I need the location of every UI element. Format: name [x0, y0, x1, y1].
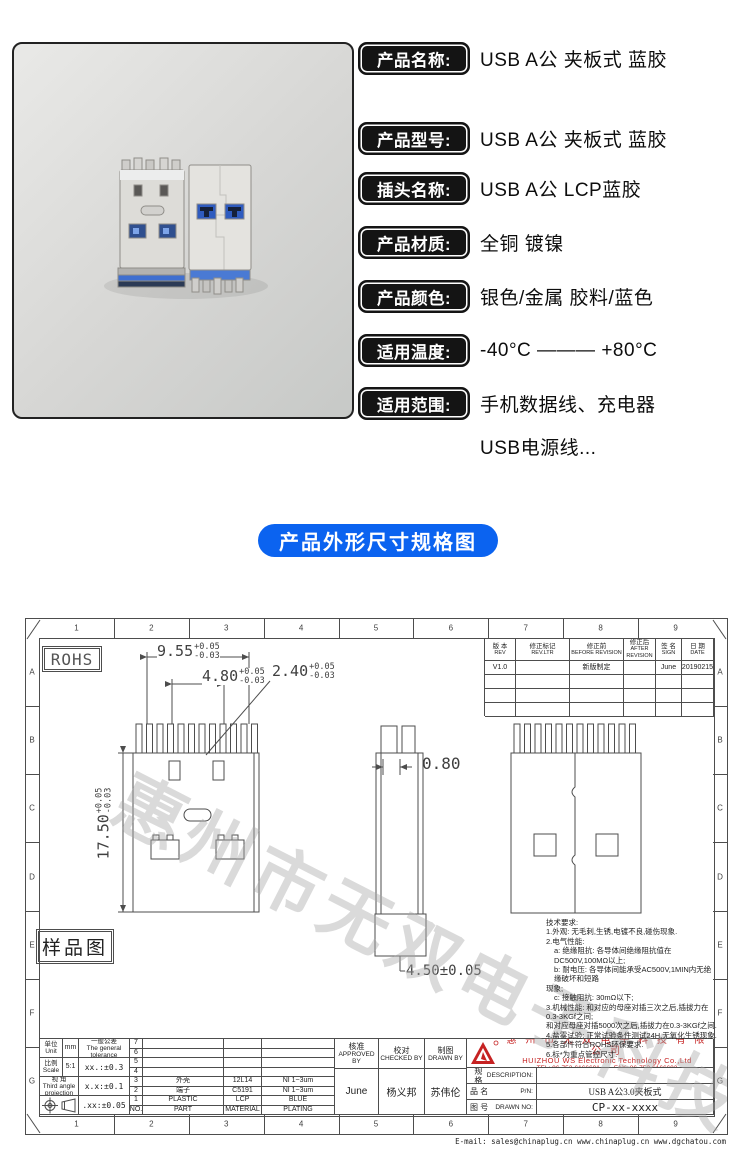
- revision-header-cn: 签 名: [661, 643, 676, 650]
- revision-header-cell: 签 名SIGN: [656, 639, 682, 661]
- dim-0-80: 0.80: [422, 756, 461, 771]
- revision-cell: [656, 675, 682, 689]
- parts-cell: MATERIAL: [224, 1106, 262, 1116]
- revision-header-en: BEFORE REVISION: [571, 650, 621, 657]
- dim-tol-minus: -0.03: [309, 672, 335, 681]
- dim-17-50: 17.50 +0.05-0.03: [96, 778, 113, 870]
- revision-cell: [624, 689, 656, 703]
- note-line: 5.各部件符合ROHS环保要求.: [546, 1040, 718, 1049]
- note-line: 现象;: [546, 984, 718, 993]
- parts-cell: [262, 1068, 335, 1078]
- approved-by-value: June: [335, 1069, 379, 1115]
- product-photo-illustration: [14, 44, 352, 417]
- revision-header-cn: 日 期: [690, 643, 705, 650]
- drawn-by-value: 苏伟伦: [425, 1069, 467, 1115]
- spec-label-product-name: 产品名称:: [358, 42, 470, 75]
- part-number-value-cell: USB A公3.0夹板式: [537, 1084, 714, 1100]
- note-line: b: 耐电压: 各导体间能承受AC500V,1MIN内无绝缘破坏和短路: [546, 965, 718, 984]
- revision-cell: June: [656, 661, 682, 675]
- projection-symbol-cell: [40, 1096, 79, 1115]
- parts-cell: 6: [130, 1049, 143, 1059]
- general-tolerance-cell: 一般公差 The general tolerance: [79, 1039, 130, 1058]
- checked-by-header: 校对 CHECKED BY: [379, 1039, 425, 1069]
- dim-9-55-value: 9.55: [157, 644, 193, 659]
- sample-figure-box: 样品图: [36, 929, 114, 964]
- sample-figure-label: 样品图: [38, 931, 112, 962]
- note-line: 2.电气性能:: [546, 937, 718, 946]
- revision-cell: [516, 689, 570, 703]
- dim-4-50: 4.50±0.05: [406, 964, 482, 979]
- parts-cell: 外壳: [143, 1077, 224, 1087]
- dim-2-40: 2.40 +0.05-0.03: [272, 663, 335, 680]
- spec-value-application: 手机数据线、充电器: [480, 387, 656, 420]
- parts-cell: PLATING: [262, 1106, 335, 1116]
- parts-cell: 端子: [143, 1087, 224, 1097]
- note-line: 3.机械性能: 和对应的母座对插三次之后,插拔力在0.3-3KGf之间;: [546, 1003, 718, 1022]
- view-angle-cell: 视 角 Third angle projection: [40, 1077, 79, 1096]
- spec-value-product-name: USB A公 夹板式 蓝胶: [480, 42, 667, 75]
- company-logo-icon: [469, 1040, 501, 1067]
- revision-header-cn: 修正前: [587, 643, 607, 650]
- revision-cell: [682, 689, 714, 703]
- revision-cell: [624, 661, 656, 675]
- approved-by-en: APPROVED BY: [335, 1051, 378, 1065]
- revision-header-en: SIGN: [662, 650, 675, 657]
- tolerance-0-1-cell: x.x:±0.1: [79, 1077, 130, 1096]
- revision-cell: V1.0: [485, 661, 516, 675]
- parts-cell: [224, 1049, 262, 1059]
- revision-header-cell: 版 本REV: [485, 639, 516, 661]
- drawn-by-header: 制图 DRAWN BY: [425, 1039, 467, 1069]
- parts-cell: [262, 1039, 335, 1049]
- dim-tol-minus: -0.03: [104, 788, 113, 814]
- description-label-cell: 规 格 DESCRIPTION:: [467, 1068, 537, 1084]
- dim-4-80-value: 4.80: [202, 669, 238, 684]
- parts-cell: 4: [130, 1068, 143, 1078]
- revision-header-en: REV: [494, 650, 505, 657]
- revision-cell: [682, 675, 714, 689]
- parts-cell: BLUE: [262, 1096, 335, 1106]
- revision-header-cn: 修正标记: [530, 643, 556, 650]
- spec-value-color: 银色/金属 胶料/蓝色: [480, 280, 653, 313]
- tolerance-0-3-cell: xx.:±0.3: [79, 1058, 130, 1077]
- description-en: DESCRIPTION:: [487, 1072, 533, 1079]
- dwg-en: DRAWN NO:: [495, 1104, 533, 1111]
- spec-value-application-line2: USB电源线...: [480, 430, 596, 463]
- note-line: 1.外观: 无毛刺,生锈,电镀不良,碰伤现象.: [546, 927, 718, 936]
- spec-label-plug-name: 插头名称:: [358, 172, 470, 205]
- parts-cell: [224, 1039, 262, 1049]
- pn-en: P/N:: [520, 1088, 533, 1095]
- parts-cell: PART: [143, 1106, 224, 1116]
- checked-by-en: CHECKED BY: [380, 1055, 422, 1062]
- note-line: 技术要求:: [546, 918, 718, 927]
- drawing-number-label-cell: 图 号 DRAWN NO:: [467, 1100, 537, 1115]
- revision-cell: [624, 703, 656, 717]
- drawn-by-en: DRAWN BY: [428, 1055, 463, 1062]
- revision-table: 版 本REV修正标记REV.LTR修正前BEFORE REVISION修正后AF…: [484, 638, 713, 716]
- parts-cell: [143, 1068, 224, 1078]
- revision-cell: [485, 703, 516, 717]
- spec-label-model: 产品型号:: [358, 122, 470, 155]
- note-line: c: 接触阻抗: 30mΩ以下;: [546, 993, 718, 1002]
- revision-cell: [570, 675, 624, 689]
- revision-header-cell: 修正后AFTER REVISION: [624, 639, 656, 661]
- drawing-number-value-cell: CP-xx-xxxx: [537, 1100, 714, 1115]
- scale-en: Scale: [43, 1067, 59, 1074]
- parts-cell: NI 1~3um: [262, 1087, 335, 1097]
- parts-cell: LCP: [224, 1096, 262, 1106]
- revision-cell: [656, 689, 682, 703]
- revision-header-cn: 版 本: [493, 643, 508, 650]
- spec-value-plug-name: USB A公 LCP蓝胶: [480, 172, 641, 205]
- parts-cell: [143, 1039, 224, 1049]
- checked-by-value: 杨义邦: [379, 1069, 425, 1115]
- unit-cn: 单位: [45, 1041, 58, 1048]
- view-en1: Third angle: [43, 1083, 76, 1090]
- revision-header-en: DATE: [690, 650, 704, 657]
- unit-en: Unit: [45, 1048, 57, 1055]
- drawn-by-cn: 制图: [438, 1046, 454, 1055]
- revision-cell: [516, 675, 570, 689]
- spec-label-color: 产品颜色:: [358, 280, 470, 313]
- revision-cell: [682, 703, 714, 717]
- unit-label-cell: 单位 Unit: [40, 1039, 63, 1058]
- parts-cell: [262, 1049, 335, 1059]
- note-line: 4.盐雾试验: 正常试验条件测试24H,无氧化生锈现象.: [546, 1031, 718, 1040]
- dim-9-55: 9.55 +0.05-0.03: [157, 643, 220, 660]
- spec-label-material: 产品材质:: [358, 226, 470, 259]
- revision-cell: 20190215: [682, 661, 714, 675]
- parts-cell: 5: [130, 1058, 143, 1068]
- parts-cell: 3: [130, 1077, 143, 1087]
- product-photo: [12, 42, 354, 419]
- unit-value-cell: mm: [63, 1039, 79, 1058]
- dim-2-40-value: 2.40: [272, 664, 308, 679]
- revision-cell: [624, 675, 656, 689]
- technical-notes: 技术要求:1.外观: 无毛刺,生锈,电镀不良,碰伤现象.2.电气性能:a: 绝缘…: [546, 918, 718, 1059]
- approval-block: 核准 APPROVED BY 校对 CHECKED BY 制图 DRAWN BY…: [334, 1038, 466, 1114]
- note-line: 6.标*为重点管控尺寸.: [546, 1050, 718, 1059]
- parts-cell: NI 1~3um: [262, 1077, 335, 1087]
- rohs-box: ROHS: [42, 646, 102, 672]
- description-cn: 规 格: [470, 1068, 487, 1084]
- dim-tol-minus: -0.03: [239, 677, 265, 686]
- dim-tol-minus: -0.03: [194, 652, 220, 661]
- parts-cell: 7: [130, 1039, 143, 1049]
- revision-cell: [485, 675, 516, 689]
- approved-by-cn: 核准: [349, 1042, 365, 1051]
- revision-header-cell: 修正前BEFORE REVISION: [570, 639, 624, 661]
- revision-header-cell: 修正标记REV.LTR: [516, 639, 570, 661]
- parts-cell: 2: [130, 1087, 143, 1097]
- approved-by-header: 核准 APPROVED BY: [335, 1039, 379, 1069]
- tolerance-table: 单位 Unit mm 一般公差 The general tolerance 比例…: [39, 1038, 129, 1114]
- dwg-cn: 图 号: [470, 1103, 488, 1112]
- revision-cell: [570, 703, 624, 717]
- revision-header-cn: 修正后: [630, 639, 650, 646]
- description-value-cell: [537, 1068, 714, 1084]
- tolerance-0-05-cell: .xx:±0.05: [79, 1096, 130, 1115]
- dim-17-50-value: 17.50: [97, 814, 112, 859]
- section-title-badge: 产品外形尺寸规格图: [258, 524, 498, 557]
- spec-value-temperature: -40°C ——— +80°C: [480, 334, 657, 367]
- revision-cell: [485, 689, 516, 703]
- spec-value-material: 全铜 镀镍: [480, 226, 564, 259]
- part-number-label-cell: 品 名 P/N:: [467, 1084, 537, 1100]
- rohs-label: ROHS: [44, 648, 100, 670]
- note-line: 和对应母座对插5000次之后,插拔力在0.3-3KGf之间.: [546, 1021, 718, 1030]
- parts-cell: C5191: [224, 1087, 262, 1097]
- parts-cell: [262, 1058, 335, 1068]
- scale-cn: 比例: [45, 1060, 58, 1067]
- parts-cell: [143, 1049, 224, 1059]
- parts-cell: NO.: [130, 1106, 143, 1116]
- dim-4-80: 4.80 +0.05-0.03: [202, 668, 265, 685]
- revision-header-en: AFTER REVISION: [624, 646, 655, 660]
- spec-value-model: USB A公 夹板式 蓝胶: [480, 122, 667, 155]
- scale-label-cell: 比例 Scale: [40, 1058, 63, 1077]
- general-en1: The general: [87, 1045, 122, 1052]
- scale-value-cell: 5:1: [63, 1058, 79, 1077]
- engineering-drawing-sheet: 112233445566778899AABBCCDDEEFFGG 惠州市无双电子…: [25, 618, 728, 1135]
- checked-by-cn: 校对: [394, 1046, 410, 1055]
- parts-cell: [224, 1068, 262, 1078]
- footer-contact-line: E-mail: sales@chinaplug.cn www.chinaplug…: [300, 1137, 726, 1146]
- note-line: a: 绝缘阻抗: 各导体间绝缘阻抗值在DC500V,100MΩ以上;: [546, 946, 718, 965]
- revision-cell: 新版制定: [570, 661, 624, 675]
- parts-cell: PLASTIC: [143, 1096, 224, 1106]
- revision-cell: [516, 703, 570, 717]
- revision-cell: [570, 689, 624, 703]
- parts-cell: [143, 1058, 224, 1068]
- revision-cell: [516, 661, 570, 675]
- revision-cell: [656, 703, 682, 717]
- parts-cell: 1: [130, 1096, 143, 1106]
- pn-cn: 品 名: [470, 1087, 488, 1096]
- revision-header-cell: 日 期DATE: [682, 639, 714, 661]
- parts-table: 76543外壳12L14NI 1~3um2端子C5191NI 1~3um1PLA…: [129, 1038, 334, 1114]
- third-angle-projection-icon: [41, 1097, 78, 1114]
- parts-cell: [224, 1058, 262, 1068]
- spec-label-temperature: 适用温度:: [358, 334, 470, 367]
- spec-label-application: 适用范围:: [358, 387, 470, 420]
- parts-cell: 12L14: [224, 1077, 262, 1087]
- revision-header-en: REV.LTR: [531, 650, 553, 657]
